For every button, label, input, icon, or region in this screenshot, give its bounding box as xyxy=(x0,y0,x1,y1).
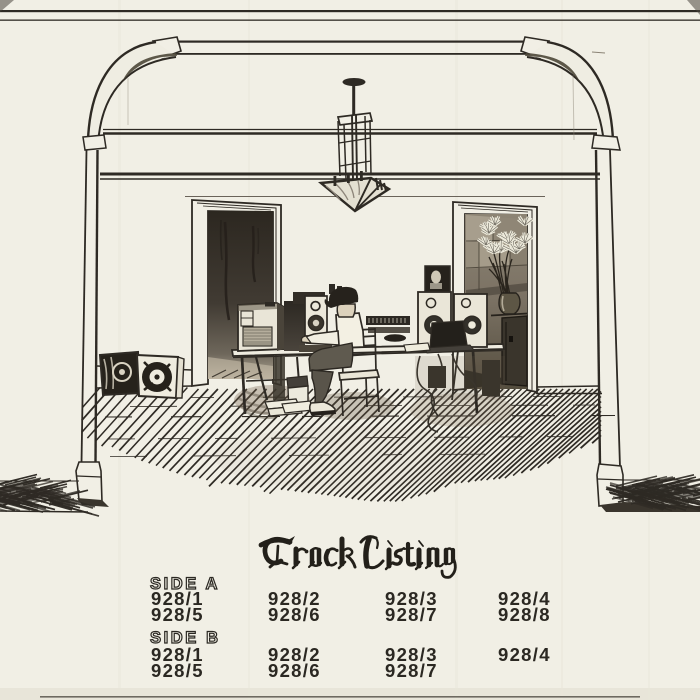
svg-text:928/7: 928/7 xyxy=(385,604,438,625)
svg-text:928/5: 928/5 xyxy=(151,660,204,681)
svg-text:928/6: 928/6 xyxy=(268,660,321,681)
svg-text:928/4: 928/4 xyxy=(498,644,551,665)
svg-text:928/8: 928/8 xyxy=(498,604,551,625)
svg-text:928/6: 928/6 xyxy=(268,604,321,625)
svg-text:928/5: 928/5 xyxy=(151,604,204,625)
svg-text:928/7: 928/7 xyxy=(385,660,438,681)
